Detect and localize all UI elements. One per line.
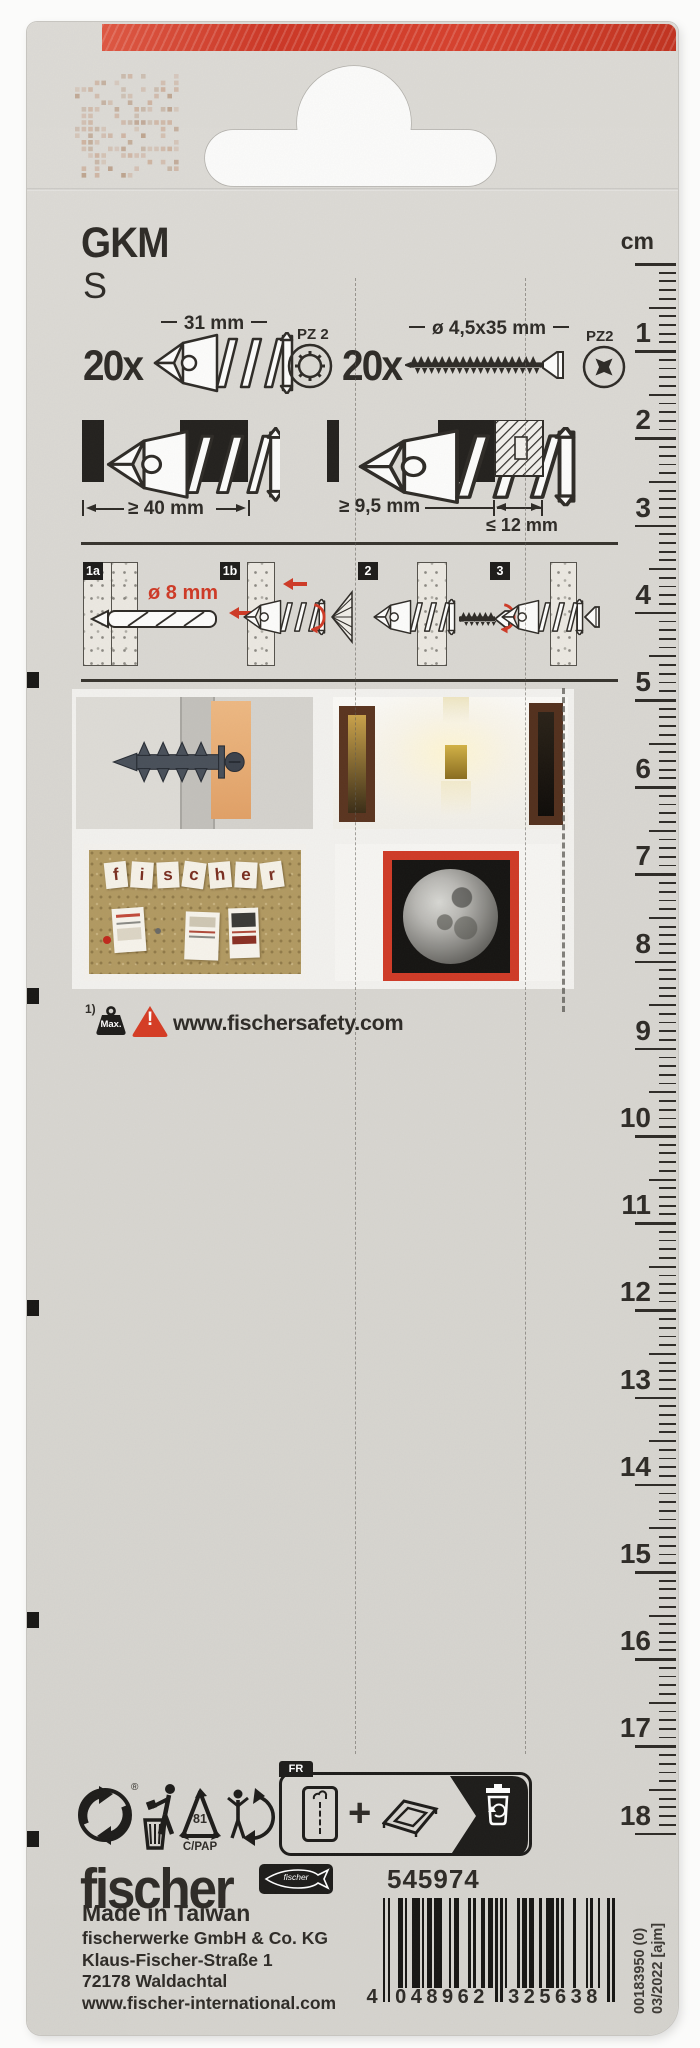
ruler-mm-tick: [659, 472, 676, 474]
ruler-mm-tick: [649, 1527, 676, 1529]
letter-card-r: r: [259, 861, 284, 890]
screw-icon: [405, 349, 589, 381]
ruler-mm-tick: [659, 1510, 676, 1512]
ruler-number-1: 1: [613, 317, 651, 349]
ruler-mm-tick: [659, 368, 676, 370]
ruler-mm-tick: [659, 1824, 676, 1826]
ruler-mm-tick: [659, 812, 676, 814]
ruler-mm-tick: [659, 1588, 676, 1590]
ruler-mm-tick: [659, 1118, 676, 1120]
ruler-mm-tick: [659, 673, 676, 675]
ruler-mm-tick: [659, 760, 676, 762]
barcode-bar: [517, 1898, 519, 1988]
ruler-mm-tick: [659, 1580, 676, 1582]
ruler-mm-tick: [659, 969, 676, 971]
packaging-card-icon: [302, 1786, 338, 1842]
barcode-bar: [398, 1898, 403, 1988]
barcode-bar: [529, 1898, 534, 1988]
ruler-mm-tick: [659, 411, 676, 413]
ruler-mm-tick: [659, 1623, 676, 1625]
ruler-cm-tick: [635, 786, 676, 789]
ruler-mm-tick: [659, 551, 676, 553]
ruler-mm-tick: [659, 1536, 676, 1538]
ruler-mm-tick: [659, 559, 676, 561]
ruler-mm-tick: [659, 542, 676, 544]
ruler-cm-tick: [635, 699, 676, 702]
ruler-mm-tick: [649, 481, 676, 483]
ruler-number-16: 16: [613, 1625, 651, 1657]
ruler-mm-tick: [659, 280, 676, 282]
cavity-plug-icon: [153, 332, 303, 394]
ruler-mm-tick: [659, 1493, 676, 1495]
ruler-mm-tick: [659, 376, 676, 378]
ruler-mm-tick: [659, 1257, 676, 1259]
ruler-cm-tick: [635, 263, 676, 266]
ruler-mm-tick: [659, 315, 676, 317]
dim-min-anchorage-depth: ≥ 40 mm: [128, 498, 204, 520]
ruler-mm-tick: [659, 734, 676, 736]
disposal-arrow: [442, 1774, 530, 1858]
registration-mark: [27, 988, 39, 1004]
ruler-mm-tick: [659, 1336, 676, 1338]
ruler-mm-tick: [659, 1292, 676, 1294]
photo-moon-frame: [331, 840, 564, 985]
solid-wall-install-diagram: [80, 420, 280, 505]
barcode-bar: [586, 1898, 588, 1988]
ruler-mm-tick: [659, 1109, 676, 1111]
ruler-mm-tick: [659, 682, 676, 684]
ruler-mm-tick: [659, 987, 676, 989]
ruler-mm-tick: [659, 1344, 676, 1346]
ruler-mm-tick: [659, 1388, 676, 1390]
ruler-mm-tick: [659, 882, 676, 884]
letter-card-h: h: [208, 861, 232, 889]
letter-card-f: f: [104, 861, 129, 889]
ruler-mm-tick: [659, 943, 676, 945]
origin-label: Made in Taiwan: [82, 1900, 250, 1927]
ruler-cm-tick: [635, 873, 676, 876]
ruler-mm-tick: [659, 289, 676, 291]
blister-tray-icon: [382, 1795, 440, 1837]
ruler-mm-tick: [659, 995, 676, 997]
ruler: cm 123456789101112131415161718: [612, 228, 678, 1843]
barcode-bar: [434, 1898, 441, 1988]
ruler-mm-tick: [659, 1405, 676, 1407]
ruler-mm-tick: [659, 1501, 676, 1503]
plug-drive-label: PZ 2: [297, 326, 329, 343]
ruler-mm-tick: [659, 1649, 676, 1651]
ruler-mm-tick: [659, 1100, 676, 1102]
barcode-bar: [505, 1898, 507, 1988]
plug-quantity: 20x: [83, 342, 142, 391]
barcode-bar: [612, 1898, 614, 2002]
drill-bit-icon: [90, 606, 225, 632]
registration-mark: [27, 1612, 39, 1628]
ruler-mm-tick: [659, 847, 676, 849]
registration-mark: [27, 672, 39, 688]
ruler-number-11: 11: [613, 1189, 651, 1221]
ruler-mm-tick: [659, 1676, 676, 1678]
ruler-mm-tick: [659, 333, 676, 335]
ruler-mm-tick: [649, 568, 676, 570]
ruler-mm-tick: [659, 1205, 676, 1207]
ruler-cm-tick: [635, 350, 676, 353]
ruler-cm-tick: [635, 1048, 676, 1051]
ruler-mm-tick: [649, 1615, 676, 1617]
ruler-mm-tick: [659, 1545, 676, 1547]
print-ref-2: 03/2022 [ajm]: [650, 1864, 666, 2014]
ruler-mm-tick: [659, 821, 676, 823]
ruler-mm-tick: [659, 1754, 676, 1756]
ruler-mm-tick: [659, 516, 676, 518]
safety-url: www.fischersafety.com: [173, 1011, 403, 1036]
red-top-strip: [102, 24, 676, 51]
ruler-mm-tick: [659, 1187, 676, 1189]
photo-plug-closeup: [72, 693, 317, 833]
ruler-mm-tick: [659, 1022, 676, 1024]
ruler-cm-tick: [635, 1484, 676, 1487]
ruler-mm-tick: [659, 1780, 676, 1782]
ruler-mm-tick: [659, 856, 676, 858]
ruler-mm-tick: [659, 1606, 676, 1608]
print-ref-1: 00183950 (0): [632, 1864, 648, 2014]
ruler-mm-tick: [659, 420, 676, 422]
ruler-mm-tick: [649, 1440, 676, 1442]
ruler-mm-tick: [659, 359, 676, 361]
address-line-3: 72178 Waldachtal: [82, 1971, 227, 1993]
ruler-mm-tick: [649, 1353, 676, 1355]
datamatrix-code: [75, 74, 181, 180]
ruler-mm-tick: [659, 324, 676, 326]
ruler-mm-tick: [659, 586, 676, 588]
ruler-mm-tick: [659, 455, 676, 457]
barcode-bar: [522, 1898, 527, 1988]
euro-hang-slot: [202, 57, 507, 192]
ruler-cm-tick: [635, 1309, 676, 1312]
ruler-mm-tick: [659, 1144, 676, 1146]
fr-country-tab: FR: [279, 1761, 313, 1777]
ruler-mm-tick: [659, 403, 676, 405]
ruler-mm-tick: [659, 716, 676, 718]
ruler-mm-tick: [659, 1431, 676, 1433]
ruler-mm-tick: [649, 307, 676, 309]
ruler-mm-tick: [659, 1449, 676, 1451]
dim-max-board-thickness: ≤ 12 mm: [486, 515, 558, 536]
registration-mark: [27, 1831, 39, 1847]
ruler-mm-tick: [659, 1152, 676, 1154]
exclamation-glyph: !: [131, 1009, 169, 1031]
ruler-mm-tick: [659, 751, 676, 753]
barcode-bar: [473, 1898, 475, 1988]
ruler-mm-tick: [659, 1196, 676, 1198]
ruler-mm-tick: [659, 1667, 676, 1669]
cork-surface: fischer: [89, 850, 301, 974]
ruler-number-5: 5: [613, 666, 651, 698]
ruler-mm-tick: [659, 926, 676, 928]
ruler-mm-tick: [659, 795, 676, 797]
pinned-letter-cards: fischer: [105, 862, 305, 888]
ruler-mm-tick: [659, 1632, 676, 1634]
ruler-mm-tick: [659, 429, 676, 431]
ruler-mm-tick: [659, 1057, 676, 1059]
ruler-number-13: 13: [613, 1364, 651, 1396]
ruler-mm-tick: [659, 1728, 676, 1730]
fold-line: [355, 278, 356, 1754]
ruler-cm-tick: [635, 612, 676, 615]
ruler-mm-tick: [659, 577, 676, 579]
ruler-unit: cm: [621, 228, 654, 255]
plug-installed-icon: [501, 598, 589, 636]
ruler-mm-tick: [659, 1248, 676, 1250]
barcode-bar: [422, 1898, 424, 1988]
ruler-number-3: 3: [613, 492, 651, 524]
ruler-mm-tick: [659, 1798, 676, 1800]
ruler-mm-tick: [659, 1083, 676, 1085]
letter-card-s: s: [156, 861, 179, 888]
ruler-mm-tick: [659, 1562, 676, 1564]
ruler-number-15: 15: [613, 1538, 651, 1570]
ruler-mm-tick: [659, 464, 676, 466]
ruler-mm-tick: [659, 638, 676, 640]
ruler-mm-tick: [659, 708, 676, 710]
ruler-mm-tick: [659, 804, 676, 806]
picture-frame: [339, 706, 375, 822]
ruler-mm-tick: [659, 900, 676, 902]
ruler-cm-tick: [635, 437, 676, 440]
ruler-mm-tick: [649, 1179, 676, 1181]
ruler-mm-tick: [659, 1475, 676, 1477]
ruler-mm-tick: [659, 1554, 676, 1556]
rotation-arrow: [311, 599, 329, 635]
ruler-number-12: 12: [613, 1276, 651, 1308]
ruler-mm-tick: [659, 1275, 676, 1277]
pz-gear-icon: [286, 342, 334, 390]
ruler-mm-tick: [659, 1213, 676, 1215]
dim-min-cavity: ≥ 9,5 mm: [339, 496, 420, 518]
ruler-cm-tick: [635, 1135, 676, 1138]
barcode-bar: [427, 1898, 432, 1988]
ruler-number-6: 6: [613, 753, 651, 785]
screw-head-icon: [583, 604, 603, 630]
ruler-mm-tick: [659, 1362, 676, 1364]
ruler-mm-tick: [659, 1126, 676, 1128]
ruler-mm-tick: [649, 830, 676, 832]
ruler-cm-tick: [635, 525, 676, 528]
ruler-mm-tick: [649, 743, 676, 745]
letter-card-i: i: [130, 861, 154, 888]
barcode: 4 048962 325638: [365, 1898, 625, 2016]
registered-mark: ®: [131, 1782, 138, 1793]
ruler-mm-tick: [659, 978, 676, 980]
picture-frame: [529, 703, 563, 825]
ruler-mm-tick: [649, 1091, 676, 1093]
ruler-mm-tick: [659, 272, 676, 274]
metal-plug-macro: [112, 739, 258, 785]
ruler-mm-tick: [659, 1772, 676, 1774]
ruler-mm-tick: [659, 865, 676, 867]
ruler-cm-tick: [635, 1571, 676, 1574]
ruler-cm-tick: [635, 1745, 676, 1748]
blister-card-back: GKM S 20x 31 mm PZ 2 20x ø 4,5x35 mm PZ2…: [27, 22, 678, 2035]
pin: [155, 928, 161, 934]
barcode-bar: [561, 1898, 563, 1988]
drill-diameter-note: ø 8 mm: [148, 582, 218, 605]
step-1b-badge: 1b: [220, 562, 240, 580]
pinned-note: [112, 907, 147, 953]
perforation-line: [562, 688, 565, 1012]
ruler-mm-tick: [659, 1370, 676, 1372]
material-code: 81: [179, 1812, 221, 1826]
material-label: C/PAP: [171, 1841, 229, 1853]
red-picture-frame: [383, 851, 519, 982]
ruler-mm-tick: [659, 1231, 676, 1233]
ruler-mm-tick: [659, 1711, 676, 1713]
fr-disposal-panel: FR +: [279, 1772, 532, 1856]
barcode-bar: [495, 1898, 497, 2002]
ruler-mm-tick: [649, 917, 676, 919]
barcode-bar: [546, 1898, 553, 1988]
ruler-mm-tick: [659, 1466, 676, 1468]
address-line-1: fischerwerke GmbH & Co. KG: [82, 1928, 328, 1950]
step-1a-badge: 1a: [83, 562, 103, 580]
registration-mark: [27, 1300, 39, 1316]
ruler-mm-tick: [659, 777, 676, 779]
ruler-mm-tick: [659, 1074, 676, 1076]
ruler-mm-tick: [659, 490, 676, 492]
wall-light: [445, 745, 467, 779]
ruler-mm-tick: [659, 1719, 676, 1721]
ruler-mm-tick: [659, 1030, 676, 1032]
barcode-digit-first: 4: [363, 1986, 381, 2009]
ruler-mm-tick: [649, 1702, 676, 1704]
ruler-mm-tick: [659, 647, 676, 649]
screw-quantity: 20x: [342, 342, 401, 391]
barcode-bar: [412, 1898, 419, 1988]
barcode-digits-left: 048962: [392, 1986, 492, 2009]
plug-install-icon: [373, 598, 461, 636]
brand-emblem: fischer: [259, 1864, 333, 1894]
ruler-mm-tick: [659, 1065, 676, 1067]
letter-card-c: c: [181, 861, 206, 890]
ruler-cm-tick: [635, 1833, 676, 1836]
ruler-mm-tick: [659, 1763, 676, 1765]
ruler-mm-tick: [659, 1414, 676, 1416]
ruler-mm-tick: [659, 1597, 676, 1599]
ruler-number-4: 4: [613, 579, 651, 611]
ruler-mm-tick: [649, 394, 676, 396]
ruler-mm-tick: [659, 1039, 676, 1041]
ruler-mm-tick: [659, 839, 676, 841]
barcode-bar: [481, 1898, 486, 1988]
max-label: Max.: [93, 1019, 129, 1030]
ruler-mm-tick: [659, 1815, 676, 1817]
ruler-mm-tick: [659, 298, 676, 300]
pinned-note: [184, 911, 220, 960]
ruler-mm-tick: [659, 891, 676, 893]
ruler-number-18: 18: [613, 1800, 651, 1832]
ruler-mm-tick: [659, 498, 676, 500]
address-line-4: www.fischer-international.com: [82, 1993, 336, 2015]
separator-line: [81, 679, 618, 682]
ruler-mm-tick: [659, 1641, 676, 1643]
barcode-bar: [573, 1898, 575, 1988]
ruler-mm-tick: [659, 1737, 676, 1739]
article-number: 545974: [387, 1864, 480, 1895]
ruler-mm-tick: [659, 621, 676, 623]
push-direction-arrow: [283, 578, 307, 590]
ruler-mm-tick: [659, 1301, 676, 1303]
ruler-number-8: 8: [613, 928, 651, 960]
barcode-bar: [449, 1898, 451, 1988]
ruler-mm-tick: [659, 934, 676, 936]
ruler-cm-tick: [635, 1397, 676, 1400]
ruler-cm-tick: [635, 1222, 676, 1225]
product-variant: S: [83, 265, 107, 307]
letter-card-e: e: [234, 861, 257, 888]
pin: [103, 936, 111, 944]
barcode-digits-right: 325638: [505, 1986, 605, 2009]
ruler-mm-tick: [659, 1161, 676, 1163]
barcode-bar: [388, 1898, 390, 2002]
screwdriver-icon: [330, 590, 354, 644]
emblem-word: fischer: [259, 1872, 333, 1882]
photo-wall-frames: [329, 693, 572, 833]
ruler-mm-tick: [659, 1519, 676, 1521]
photo-corkboard: fischer: [80, 840, 310, 985]
ruler-mm-tick: [649, 1266, 676, 1268]
ruler-mm-tick: [659, 1684, 676, 1686]
barcode-bar: [488, 1898, 493, 1988]
ruler-mm-tick: [659, 1806, 676, 1808]
barcode-bar: [598, 1898, 600, 1988]
ruler-number-7: 7: [613, 840, 651, 872]
packaging-photo: GKM S 20x 31 mm PZ 2 20x ø 4,5x35 mm PZ2…: [0, 0, 700, 2048]
plus-sign: +: [348, 1791, 371, 1836]
barcode-bar: [556, 1898, 558, 1988]
ruler-mm-tick: [659, 1170, 676, 1172]
ruler-mm-tick: [659, 594, 676, 596]
ruler-mm-tick: [649, 1789, 676, 1791]
barcode-bar: [539, 1898, 541, 1988]
flap-fold-line: [27, 188, 678, 191]
wall-light-glow: [443, 697, 469, 723]
green-dot-icon: [75, 1784, 135, 1846]
ruler-number-10: 10: [613, 1102, 651, 1134]
screw-drive-label: PZ2: [586, 328, 614, 345]
ruler-mm-tick: [659, 446, 676, 448]
ruler-number-17: 17: [613, 1712, 651, 1744]
screw-size-label: ø 4,5x35 mm: [402, 318, 567, 340]
ruler-number-14: 14: [613, 1451, 651, 1483]
ruler-mm-tick: [649, 1004, 676, 1006]
fold-line: [525, 278, 526, 1754]
moon-photo: [403, 869, 498, 964]
ruler-mm-tick: [659, 952, 676, 954]
ruler-cm-tick: [635, 961, 676, 964]
ruler-mm-tick: [659, 1318, 676, 1320]
ruler-mm-tick: [659, 1693, 676, 1695]
ruler-mm-tick: [659, 1283, 676, 1285]
ruler-mm-tick: [659, 629, 676, 631]
barcode-bar: [405, 1898, 407, 1988]
ruler-mm-tick: [659, 664, 676, 666]
pinned-note: [228, 907, 260, 958]
separator-line: [81, 542, 618, 545]
ruler-mm-tick: [659, 690, 676, 692]
address-line-2: Klaus-Fischer-Straße 1: [82, 1950, 273, 1972]
ruler-mm-tick: [659, 725, 676, 727]
barcode-bar: [383, 1898, 385, 2002]
